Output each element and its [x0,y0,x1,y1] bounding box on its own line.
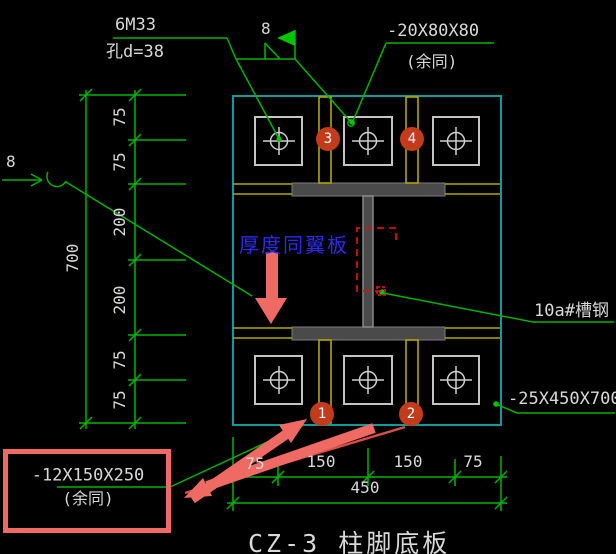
washer-plate-size-label: -20X80X80 [387,23,479,40]
left-weld-size-label: 8 [6,154,16,170]
dim-bottom-4: 75 [463,454,482,470]
dim-left-6: 75 [112,390,128,409]
down-arrow-markup [255,252,287,324]
stiffener-plate-note-label: (余同) [62,491,113,507]
dim-left-2: 75 [112,152,128,171]
washer-plate-note-label: (余同) [406,54,457,70]
dim-bottom-3: 150 [394,454,423,470]
channel-steel-label: 10a#槽钢 [534,303,609,320]
dim-left-1: 75 [112,107,128,126]
stiffener-plate-size-label: -12X150X250 [32,468,145,485]
base-plate-size-label: -25X450X700 [508,391,616,408]
anchor-bolt-count-label: 6M33 [115,17,156,34]
dim-bottom-total: 450 [351,480,380,496]
dim-bottom-2: 150 [307,454,336,470]
dim-left-5: 75 [112,350,128,369]
anchor-bolt-hole-label: 孔d=38 [106,44,164,61]
dim-left-4: 200 [112,286,128,315]
dim-left-3: 200 [112,208,128,237]
dim-bottom-1: 75 [245,456,264,472]
cad-drawing-canvas: 1 2 3 4 6M33 孔d=38 8 -20X80X80 (余同) 8 厚度… [0,0,616,554]
web-thickness-note: 厚度同翼板 [239,235,349,255]
drawing-title: CZ-3 柱脚底板 [248,531,450,554]
dim-left-total: 700 [65,244,81,273]
top-weld-size-label: 8 [261,21,271,37]
